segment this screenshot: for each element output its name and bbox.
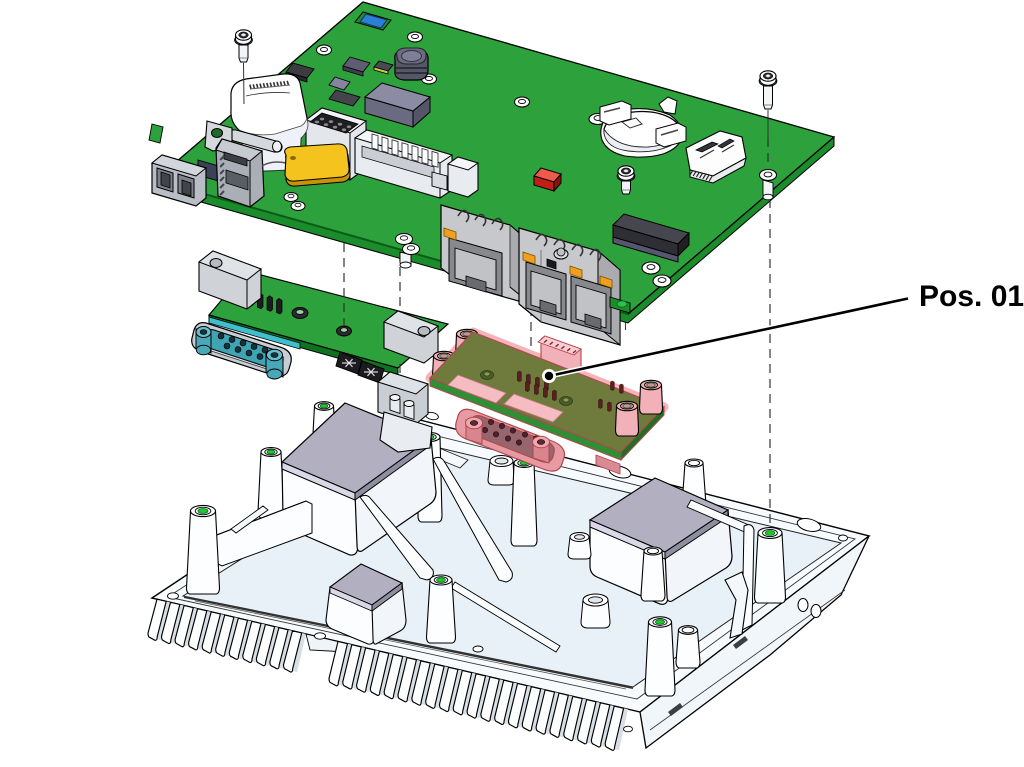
svg-text:Pos. 01: Pos. 01 [919, 280, 1024, 313]
